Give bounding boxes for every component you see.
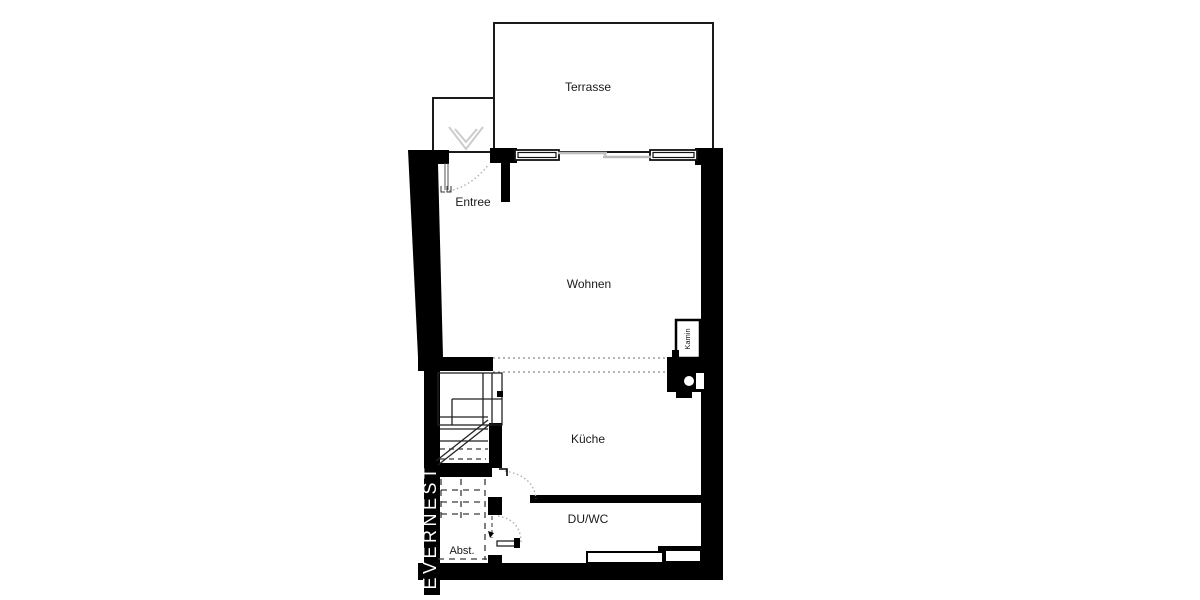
wall-kueche-duwc [530, 495, 703, 503]
brand-watermark: EVERNEST [420, 464, 440, 589]
room-label-kamin: Kamin [683, 328, 692, 349]
kueche-door [499, 469, 536, 499]
kamin-box: Kamin [672, 320, 700, 358]
floor-plan-drawing: Kamin [0, 0, 1200, 600]
wall-hall-stub-upper [488, 497, 502, 515]
door-swing-arc-entree [449, 164, 489, 191]
room-label-kueche: Küche [571, 432, 605, 446]
wall-wohnen-kueche [418, 357, 493, 371]
sliding-door-symbol [558, 153, 651, 157]
door-leaf-entree [445, 163, 448, 190]
room-label-duwc: DU/WC [568, 512, 609, 526]
room-label-terrasse: Terrasse [565, 80, 611, 94]
wall-entree-stub [490, 148, 517, 163]
stair-cut-line [436, 420, 490, 465]
wall-hall-stub-lower [488, 555, 502, 570]
room-label-entree: Entree [455, 195, 491, 209]
chimney-notch [696, 373, 704, 389]
walls [408, 148, 723, 595]
stair-treads [440, 417, 488, 441]
door-arrow [488, 531, 494, 538]
door-leaf-cap [514, 538, 520, 548]
entrance-canopy-outline [433, 98, 494, 152]
floor-plan-page: Kamin [0, 0, 1200, 600]
wall-left-upper [408, 150, 449, 357]
window-symbol-left [515, 150, 559, 160]
room-label-abst: Abst. [449, 545, 474, 557]
window-symbol-right [650, 150, 697, 160]
entrance-arrow-icon [449, 127, 483, 149]
wall-right [701, 148, 723, 580]
wall-chimney-foot [676, 390, 692, 398]
door-leaf-kueche [499, 469, 507, 476]
chimney-flue-icon [684, 376, 694, 386]
duwc-door [488, 516, 521, 548]
room-label-wohnen: Wohnen [567, 277, 611, 291]
bottom-window-symbol-2 [666, 551, 700, 561]
bottom-window-symbol [587, 552, 663, 563]
entree-door [441, 163, 489, 192]
stair-post [497, 391, 503, 397]
door-swing-arc-kueche [505, 471, 536, 499]
wall-stair-side [489, 423, 502, 468]
wall-entree-vertical [501, 163, 510, 202]
